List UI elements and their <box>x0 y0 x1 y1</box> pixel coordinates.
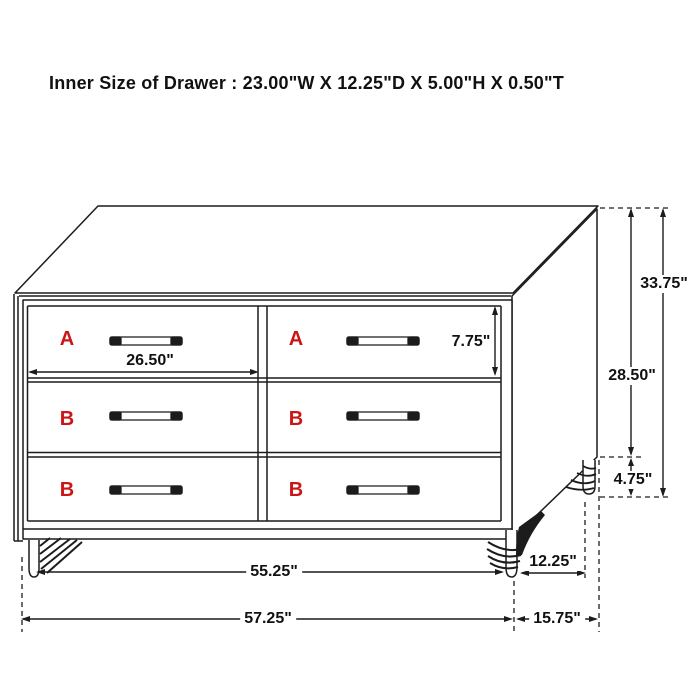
dim-label-overall-depth: 15.75" <box>529 610 585 628</box>
furniture-dimension-diagram: Inner Size of Drawer : 23.00"W X 12.25"D… <box>0 0 700 700</box>
drawer-label: B <box>289 409 303 429</box>
dim-label-overall-height: 33.75" <box>636 275 692 293</box>
dresser-line-art <box>0 0 700 700</box>
drawer-label: A <box>60 329 74 349</box>
dim-label-case-height: 28.50" <box>604 367 660 385</box>
drawer-handle <box>347 337 419 345</box>
dim-label-drawer-width: 26.50" <box>126 353 174 369</box>
drawer-handle <box>110 412 182 420</box>
dim-label-overall-width: 57.25" <box>240 610 296 628</box>
drawer-label: B <box>60 409 74 429</box>
dim-label-drawer-height: 7.75" <box>452 334 491 350</box>
drawer-handle <box>110 486 182 494</box>
dim-label-leg-height: 4.75" <box>610 471 657 489</box>
dim-label-leg-span-depth: 12.25" <box>525 553 581 571</box>
drawer-handle <box>347 412 419 420</box>
drawer-handle <box>110 337 182 345</box>
front-left-leg <box>29 538 82 577</box>
dim-label-leg-span-width: 55.25" <box>246 563 302 581</box>
drawer-label: A <box>289 329 303 349</box>
drawer-label: B <box>289 480 303 500</box>
drawer-handle <box>347 486 419 494</box>
drawer-label: B <box>60 480 74 500</box>
